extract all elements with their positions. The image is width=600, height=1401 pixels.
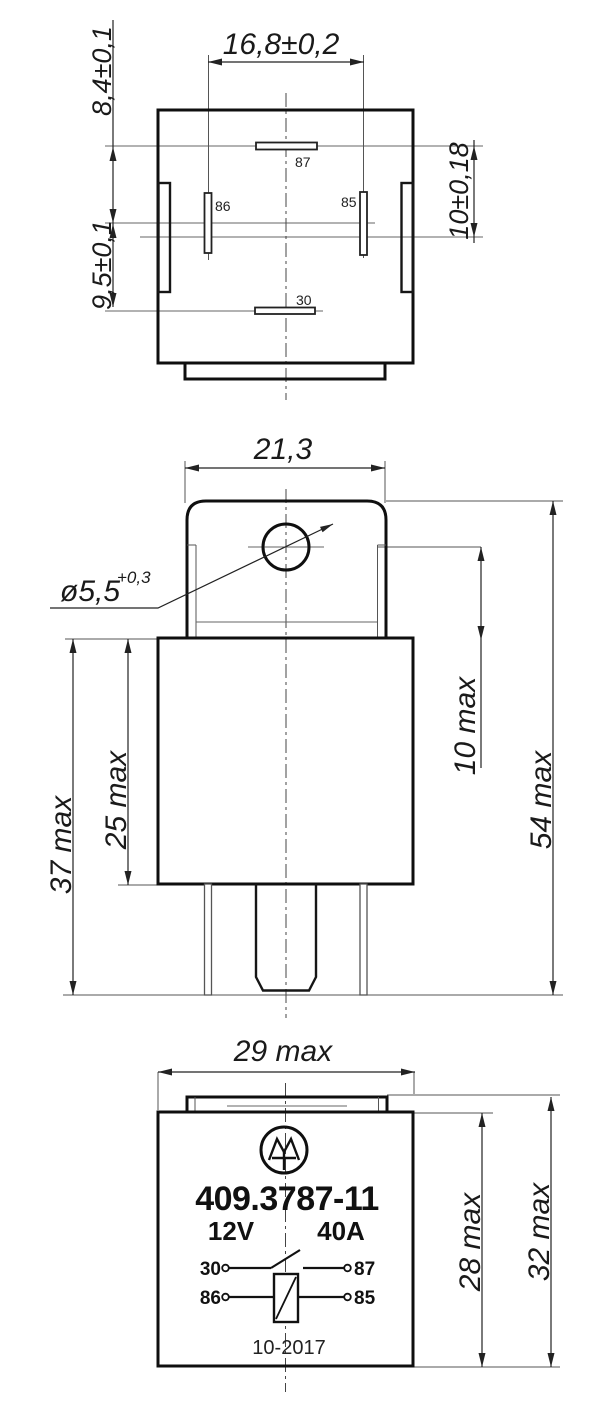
side-pin-right: [360, 884, 367, 995]
dim-body-height-label: 25 max: [100, 750, 133, 850]
dim-total-height-label: 54 max: [525, 750, 558, 849]
voltage-rating: 12V: [208, 1216, 255, 1246]
schematic-pin-86-label: 86: [200, 1288, 221, 1309]
dim-width-label: 29 max: [233, 1035, 333, 1068]
engineering-drawing: 16,8±0,2 8,4±0,1 9,5±0,1 10±0,18 87 86 8…: [0, 0, 600, 1401]
pin-86-blade: [205, 193, 212, 253]
dim-right-span-label: 10±0,18: [444, 142, 474, 239]
current-rating: 40A: [317, 1216, 365, 1246]
pin-87-label: 87: [295, 154, 311, 170]
dim-bracket-width-label: 21,3: [253, 433, 313, 466]
dim-axis-to-30-label: 9,5±0,1: [87, 220, 117, 310]
pin-87-blade: [256, 143, 317, 150]
pin-30-label: 30: [296, 292, 312, 308]
dim-hole-dia-label: ø5,5: [60, 575, 120, 608]
dim-hole-to-body-label: 10 max: [449, 676, 482, 775]
terminal-30-dot: [222, 1265, 229, 1272]
pin-86-label: 86: [215, 198, 231, 214]
pin-30-blade: [255, 308, 315, 315]
dim-front-body-height-label: 28 max: [454, 1192, 487, 1292]
dim-hole-tol-label: +0,3: [117, 568, 151, 587]
pin-85-label: 85: [341, 194, 357, 210]
schematic-pin-30-label: 30: [200, 1259, 221, 1280]
pin-85-blade: [360, 192, 367, 255]
terminal-87-dot: [344, 1265, 351, 1272]
terminal-85-dot: [344, 1294, 351, 1301]
dim-body-with-pins-label: 37 max: [45, 795, 78, 894]
part-number: 409.3787-11: [195, 1180, 379, 1218]
side-pin-left: [205, 884, 212, 995]
dim-top-to-87-label: 8,4±0,1: [87, 26, 117, 116]
dim-pin-span-label: 16,8±0,2: [223, 28, 340, 61]
schematic-pin-87-label: 87: [354, 1259, 375, 1280]
schematic-pin-85-label: 85: [354, 1288, 376, 1309]
dim-height-with-tab-label: 32 max: [523, 1182, 556, 1281]
terminal-86-dot: [222, 1294, 229, 1301]
date-code: 10-2017: [252, 1337, 325, 1359]
